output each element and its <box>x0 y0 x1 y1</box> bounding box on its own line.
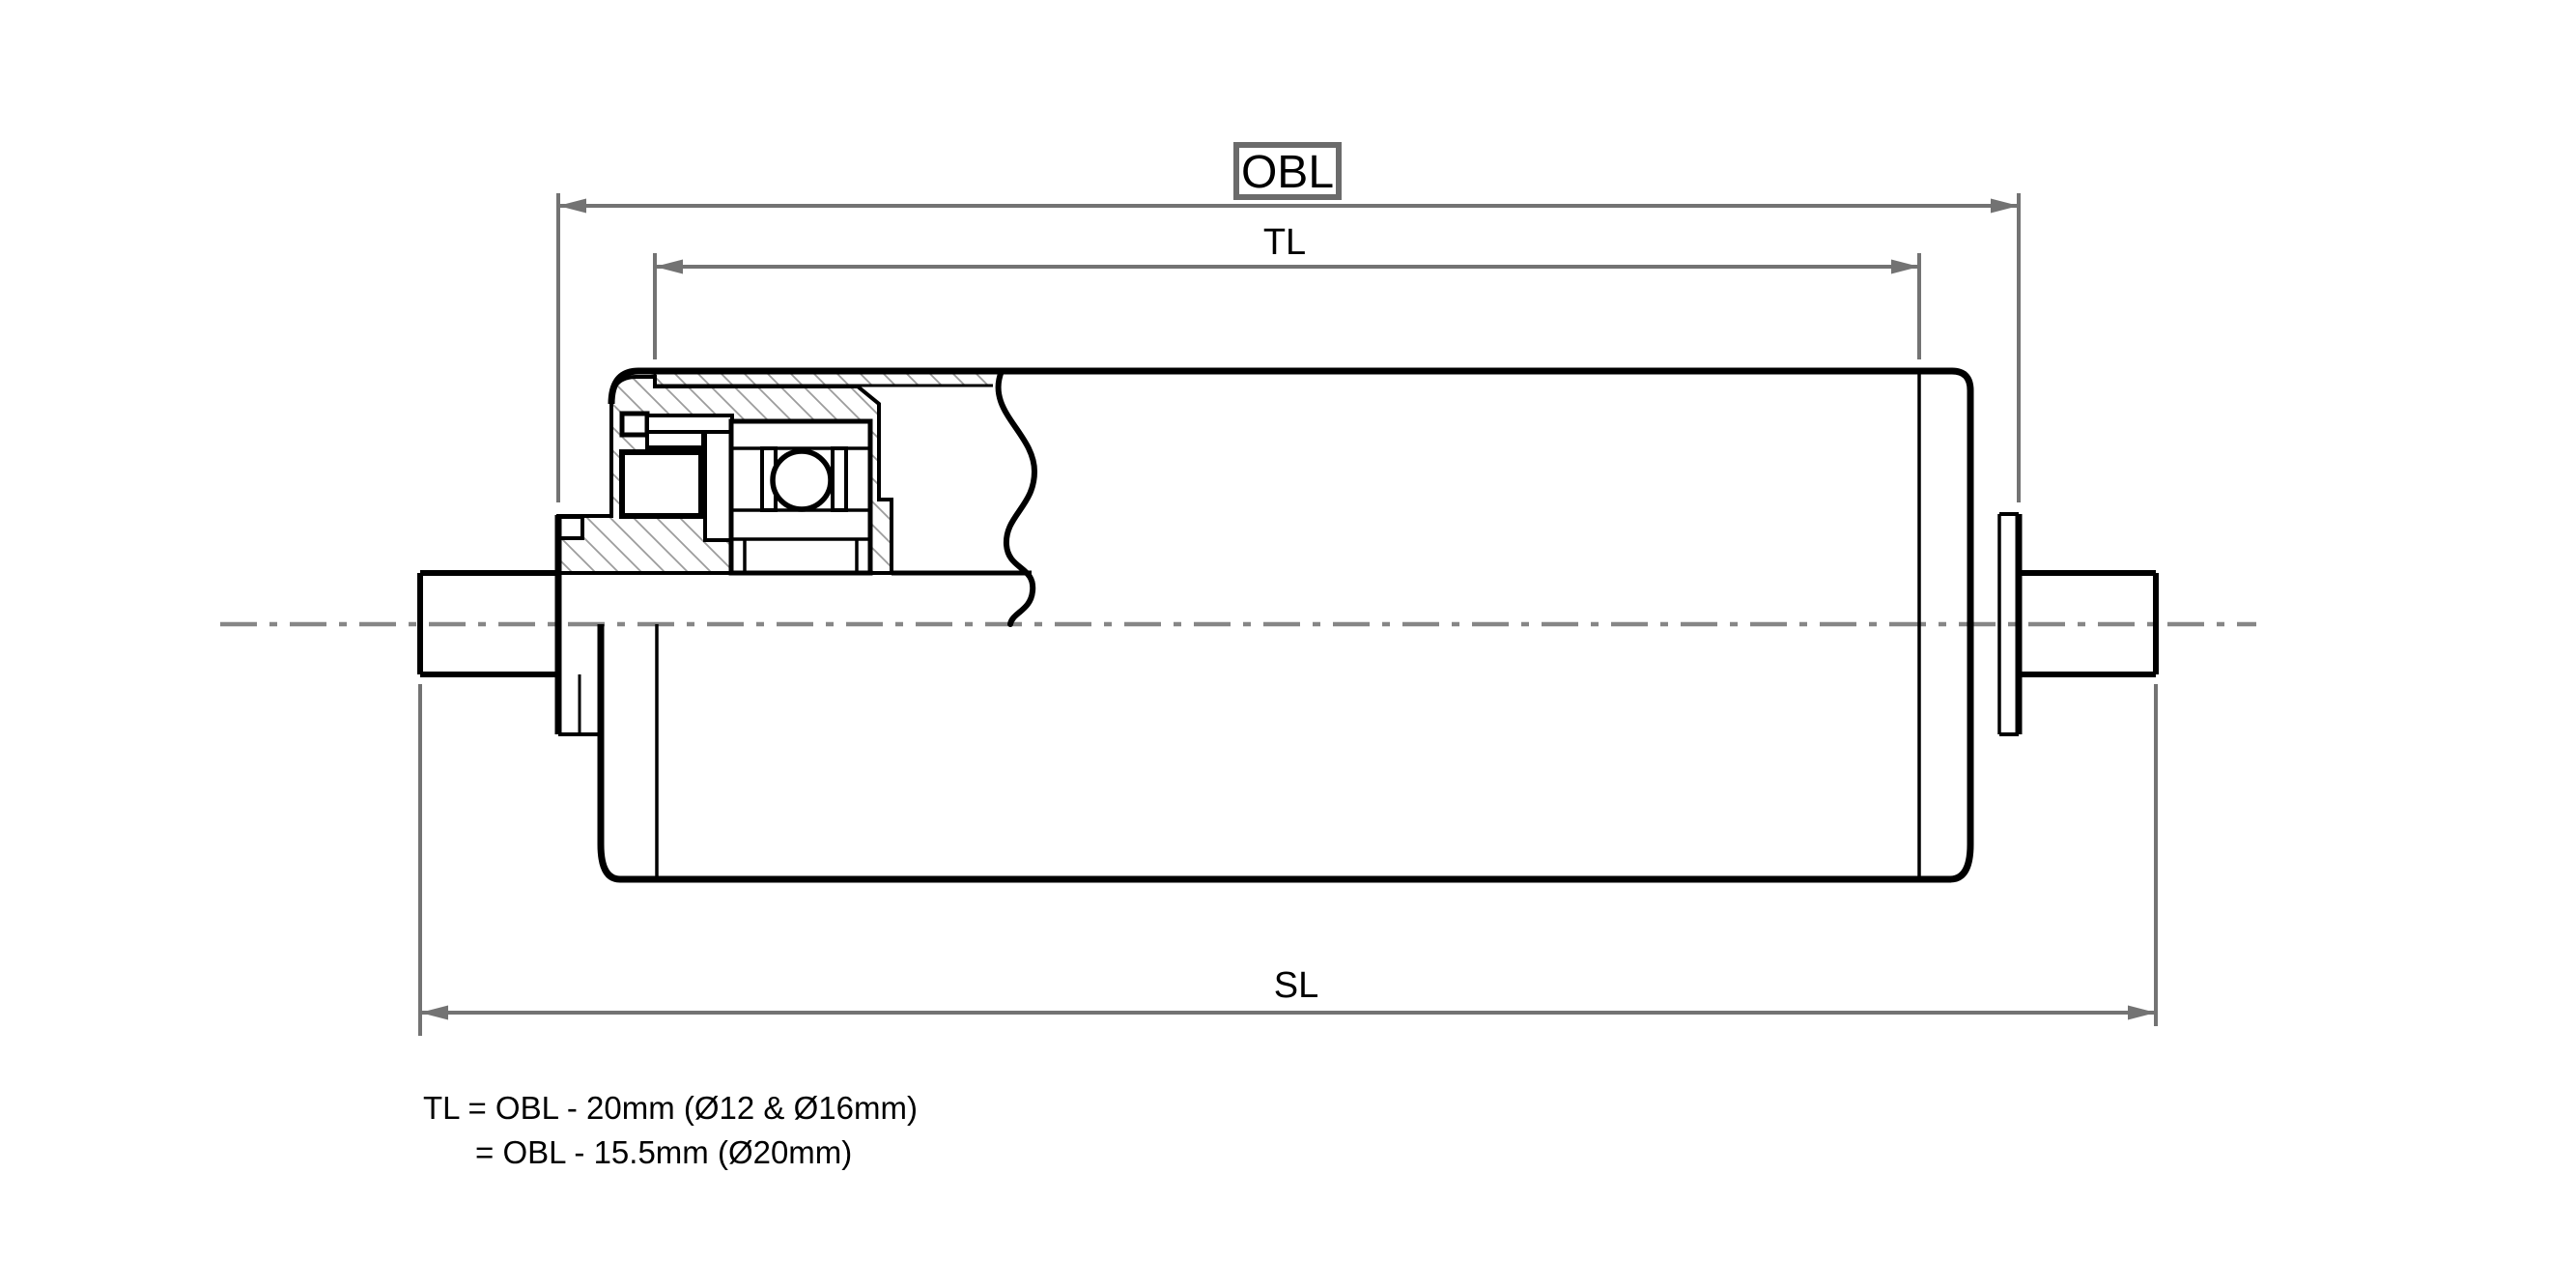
roller-section-drawing: OBL TL SL TL = OBL - 20mm (Ø12 & Ø16mm) … <box>0 0 2576 1288</box>
obl-arrow-right <box>1991 199 2019 214</box>
sl-dimension: SL <box>420 684 2156 1036</box>
wavy-break-line <box>999 371 1034 624</box>
tl-arrow-right <box>1891 260 1919 274</box>
bearing-seal-right <box>833 448 846 510</box>
ball-bearing <box>731 421 870 573</box>
obl-label: OBL <box>1241 147 1334 198</box>
tube-bottom-line <box>601 624 1951 879</box>
sl-arrow-right <box>2128 1006 2156 1020</box>
formula-note: TL = OBL - 20mm (Ø12 & Ø16mm) = OBL - 15… <box>423 1090 918 1170</box>
seal-square-slot <box>622 414 647 435</box>
seal-lower-slot <box>647 432 703 447</box>
seal-upper-slot <box>647 415 732 432</box>
obl-arrow-left <box>558 199 586 214</box>
drawing-svg: OBL TL SL TL = OBL - 20mm (Ø12 & Ø16mm) … <box>0 0 2576 1288</box>
seal-channel <box>705 432 732 540</box>
tl-arrow-left <box>655 260 683 274</box>
formula-line-2: = OBL - 15.5mm (Ø20mm) <box>475 1134 852 1170</box>
bearing-ball <box>773 451 831 509</box>
formula-line-1: TL = OBL - 20mm (Ø12 & Ø16mm) <box>423 1090 918 1126</box>
sl-label: SL <box>1274 965 1318 1006</box>
tl-label: TL <box>1263 222 1306 263</box>
left-bearing-assembly <box>558 371 993 573</box>
tl-dimension: TL <box>655 222 1919 359</box>
cap-inner-cavity <box>622 452 701 516</box>
sl-arrow-left <box>420 1006 448 1020</box>
cap-face-notch <box>558 517 582 538</box>
